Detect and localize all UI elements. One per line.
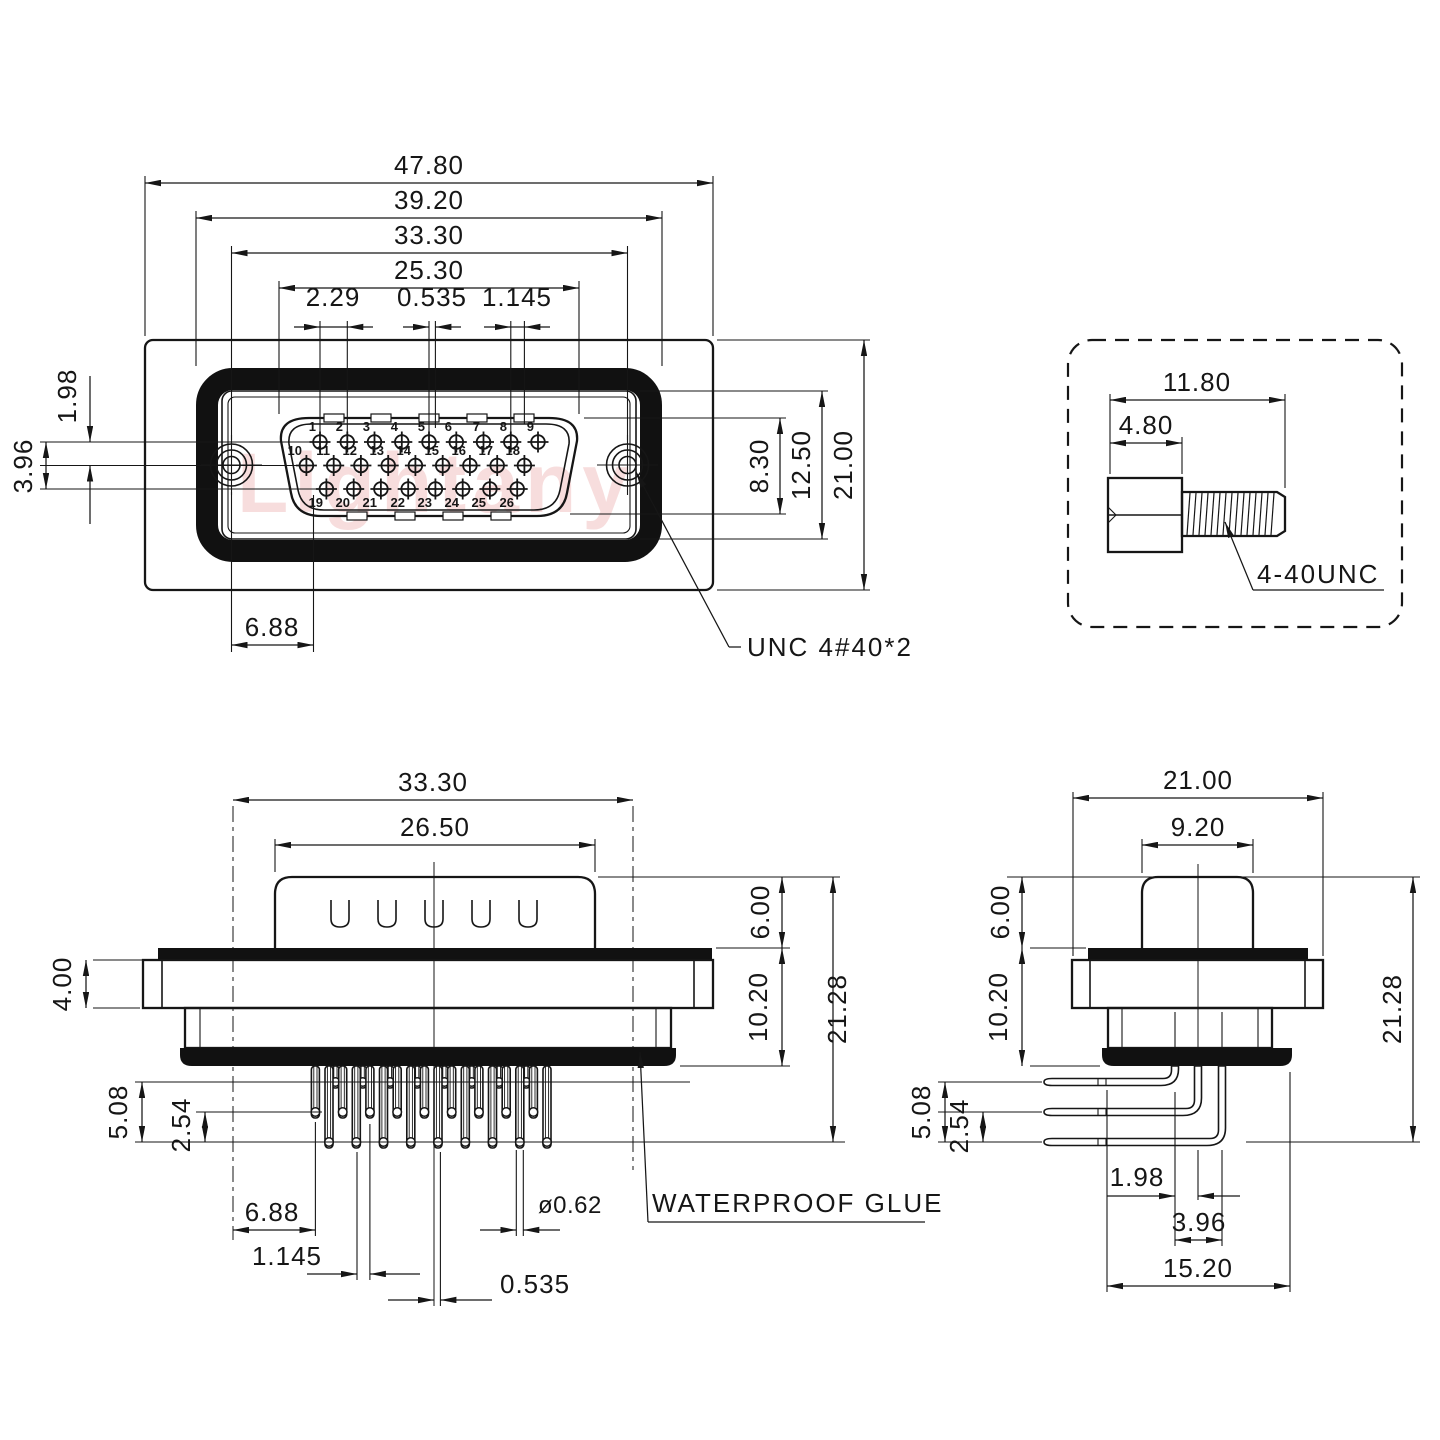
profile-gasket bbox=[1088, 948, 1308, 960]
pin-number: 13 bbox=[370, 443, 384, 458]
pin-number: 26 bbox=[500, 495, 514, 510]
side-pin-comb bbox=[311, 1066, 551, 1148]
dim-front-flange-height: 21.00 bbox=[828, 430, 858, 500]
pin-number: 12 bbox=[343, 443, 357, 458]
pin-number: 23 bbox=[418, 495, 432, 510]
dim-side-shell-height: 6.00 bbox=[745, 885, 775, 940]
dim-side-flange-thickness: 4.00 bbox=[47, 957, 77, 1012]
dim-side-body-width: 33.30 bbox=[398, 767, 468, 797]
dim-front-pin-pitch: 2.29 bbox=[306, 282, 361, 312]
screw-head bbox=[1108, 478, 1182, 552]
pin-number: 5 bbox=[418, 419, 425, 434]
screw-detail: 11.80 4.80 4-40UNC bbox=[1068, 340, 1402, 627]
front-dimensions: 47.80 39.20 33.30 25.30 2.29 0.535 bbox=[8, 150, 913, 662]
dim-front-row-gap: 1.98 bbox=[52, 369, 82, 424]
dim-side-hole-to-pin: 6.88 bbox=[245, 1197, 300, 1227]
dim-side-total-height: 21.28 bbox=[822, 974, 852, 1044]
side-dimensions: 33.30 26.50 6.00 10.20 21.28 4.00 5.08 2… bbox=[47, 767, 943, 1306]
pin-number: 2 bbox=[336, 419, 343, 434]
note-waterproof-glue: WATERPROOF GLUE bbox=[652, 1188, 943, 1218]
side-shell bbox=[275, 877, 595, 948]
profile-glue-bar bbox=[1102, 1048, 1292, 1066]
side-gasket bbox=[158, 948, 712, 960]
pin-number: 20 bbox=[336, 495, 350, 510]
pin-number: 14 bbox=[397, 443, 412, 458]
dim-front-hole-to-pin: 6.88 bbox=[245, 612, 300, 642]
side-flange bbox=[143, 960, 713, 1008]
pin-number: 1 bbox=[309, 419, 316, 434]
profile-body bbox=[1108, 1008, 1272, 1048]
dim-side-body-height: 10.20 bbox=[743, 972, 773, 1042]
dim-side-pin-stagger: 5.08 bbox=[103, 1085, 133, 1140]
dim-profile-shell-height: 6.00 bbox=[985, 885, 1015, 940]
dim-profile-row-gap: 1.98 bbox=[1110, 1162, 1165, 1192]
pin-number: 24 bbox=[445, 495, 460, 510]
dim-profile-shell-width: 9.20 bbox=[1171, 812, 1226, 842]
pin-number: 15 bbox=[425, 443, 439, 458]
dim-profile-row-span: 3.96 bbox=[1172, 1207, 1227, 1237]
pin-number: 11 bbox=[316, 443, 330, 458]
dim-side-tail-center-offset: 0.535 bbox=[500, 1269, 570, 1299]
dim-profile-tail-span: 15.20 bbox=[1163, 1253, 1233, 1283]
dim-screw-head-length: 4.80 bbox=[1119, 410, 1174, 440]
dim-side-shell-width: 26.50 bbox=[400, 812, 470, 842]
dim-front-row-center-offset: 0.535 bbox=[397, 282, 467, 312]
pin-number: 9 bbox=[527, 419, 534, 434]
dim-profile-pin-step: 2.54 bbox=[944, 1099, 974, 1154]
right-angle-pins bbox=[1044, 1066, 1226, 1146]
pin-number: 10 bbox=[288, 443, 302, 458]
pin-number: 18 bbox=[506, 443, 520, 458]
dim-front-shell-height: 8.30 bbox=[744, 439, 774, 494]
note-front-screw: UNC 4#40*2 bbox=[747, 632, 913, 662]
pin-number: 8 bbox=[500, 419, 507, 434]
front-view: Lightany bbox=[8, 150, 913, 662]
dim-front-insert-height: 12.50 bbox=[786, 430, 816, 500]
dim-side-tail-offset: 1.145 bbox=[252, 1241, 322, 1271]
dim-profile-flange-width: 21.00 bbox=[1163, 765, 1233, 795]
pin-number: 25 bbox=[472, 495, 486, 510]
pin-number: 6 bbox=[445, 419, 452, 434]
dim-front-flange-width: 47.80 bbox=[394, 150, 464, 180]
side-view: 33.30 26.50 6.00 10.20 21.28 4.00 5.08 2… bbox=[47, 767, 943, 1306]
dim-front-shell-width: 25.30 bbox=[394, 255, 464, 285]
side-glue-bar bbox=[180, 1048, 676, 1066]
profile-dimensions: 21.00 9.20 6.00 10.20 5.08 2.54 21.28 bbox=[906, 765, 1420, 1292]
dim-profile-body-height: 10.20 bbox=[983, 972, 1013, 1042]
side-body bbox=[185, 1008, 671, 1048]
pin-number: 22 bbox=[391, 495, 405, 510]
profile-view: 21.00 9.20 6.00 10.20 5.08 2.54 21.28 bbox=[906, 765, 1420, 1292]
dim-front-row-span: 3.96 bbox=[8, 439, 38, 494]
drawing-page: Lightany bbox=[0, 0, 1440, 1440]
dim-front-hole-spacing: 33.30 bbox=[394, 220, 464, 250]
dim-front-row-half-pitch: 1.145 bbox=[482, 282, 552, 312]
screw-thread bbox=[1182, 492, 1285, 536]
pin-number: 3 bbox=[363, 419, 370, 434]
dim-side-pin-diameter: ø0.62 bbox=[538, 1192, 602, 1219]
dim-profile-pin-stagger: 5.08 bbox=[906, 1085, 936, 1140]
dim-front-seal-width: 39.20 bbox=[394, 185, 464, 215]
dim-profile-total-height: 21.28 bbox=[1377, 974, 1407, 1044]
note-screw-thread: 4-40UNC bbox=[1257, 559, 1379, 589]
pin-number: 7 bbox=[473, 419, 480, 434]
dim-screw-total-length: 11.80 bbox=[1163, 367, 1231, 397]
pin-number: 16 bbox=[452, 443, 466, 458]
pin-number: 4 bbox=[391, 419, 399, 434]
pin-number: 21 bbox=[363, 495, 377, 510]
dim-side-pin-step: 2.54 bbox=[166, 1098, 196, 1153]
technical-drawing: Lightany bbox=[0, 0, 1440, 1440]
pin-number: 19 bbox=[309, 495, 323, 510]
pin-number: 17 bbox=[479, 443, 493, 458]
